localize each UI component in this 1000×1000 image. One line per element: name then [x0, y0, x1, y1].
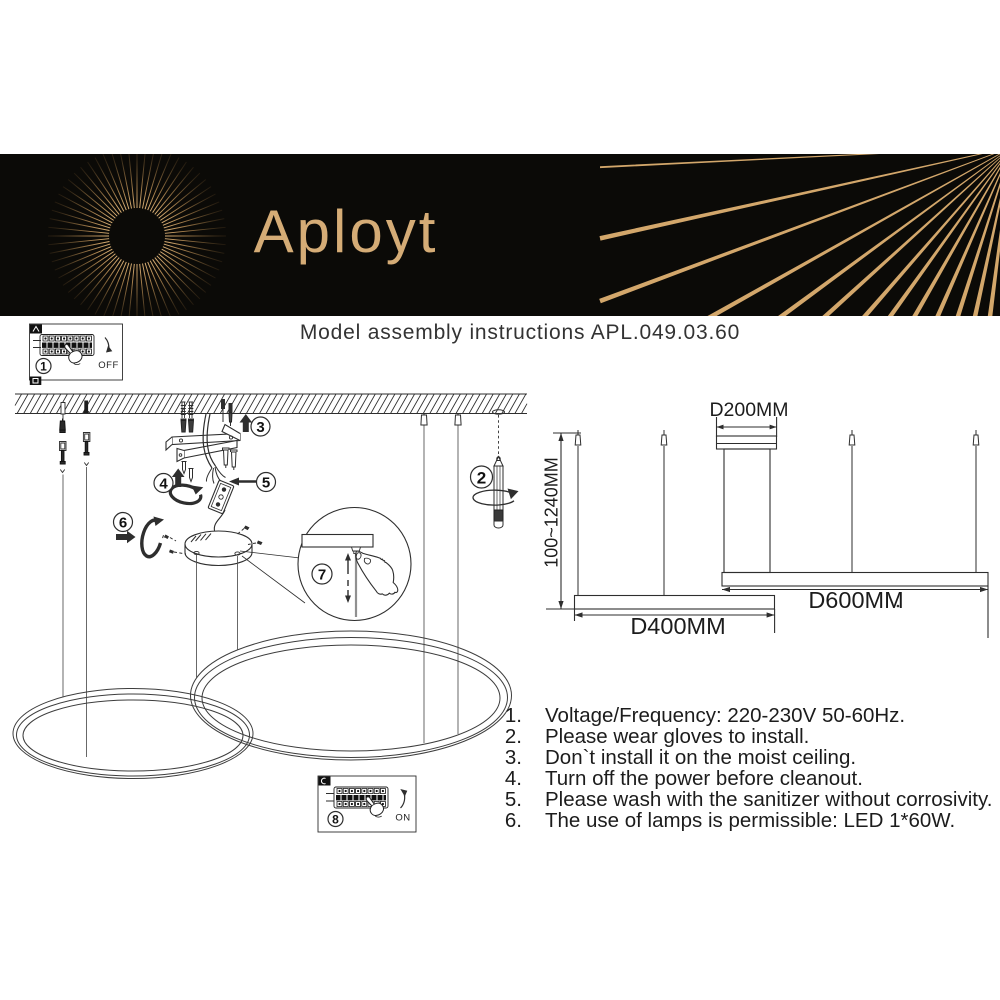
svg-text:Turn off the power before clea: Turn off the power before cleanout. — [545, 767, 863, 790]
svg-text:Aployt: Aployt — [254, 198, 439, 265]
svg-text:5.: 5. — [505, 788, 522, 811]
svg-text:2.: 2. — [505, 725, 522, 748]
svg-text:4.: 4. — [505, 767, 522, 790]
svg-text:3.: 3. — [505, 746, 522, 769]
svg-text:6: 6 — [119, 515, 127, 532]
svg-text:D400MM: D400MM — [630, 613, 725, 639]
svg-text:6.: 6. — [505, 809, 522, 832]
svg-text:Please wash with the sanitizer: Please wash with the sanitizer without c… — [545, 788, 992, 811]
svg-text:4: 4 — [159, 476, 168, 493]
svg-text:8: 8 — [332, 813, 339, 827]
svg-text:2: 2 — [477, 469, 486, 488]
svg-text:D600MM: D600MM — [808, 587, 903, 613]
svg-text:1: 1 — [40, 360, 47, 374]
svg-text:Don`t install it on the moist: Don`t install it on the moist ceiling. — [545, 746, 856, 769]
svg-text:Model assembly instructions AP: Model assembly instructions APL.049.03.6… — [300, 321, 740, 344]
svg-text:The use of lamps is permissibl: The use of lamps is permissible: LED 1*6… — [545, 809, 955, 832]
svg-text:OFF: OFF — [98, 360, 119, 371]
svg-text:7: 7 — [318, 567, 326, 584]
svg-text:Please wear gloves to install.: Please wear gloves to install. — [545, 725, 809, 748]
svg-text:1.: 1. — [505, 704, 522, 727]
svg-text:ON: ON — [395, 813, 410, 824]
svg-text:Voltage/Frequency: 220-230V 50: Voltage/Frequency: 220-230V 50-60Hz. — [545, 704, 905, 727]
svg-text:5: 5 — [262, 475, 270, 492]
svg-text:D200MM: D200MM — [709, 399, 788, 421]
svg-text:100~1240MM: 100~1240MM — [541, 457, 561, 568]
svg-text:3: 3 — [256, 419, 264, 436]
